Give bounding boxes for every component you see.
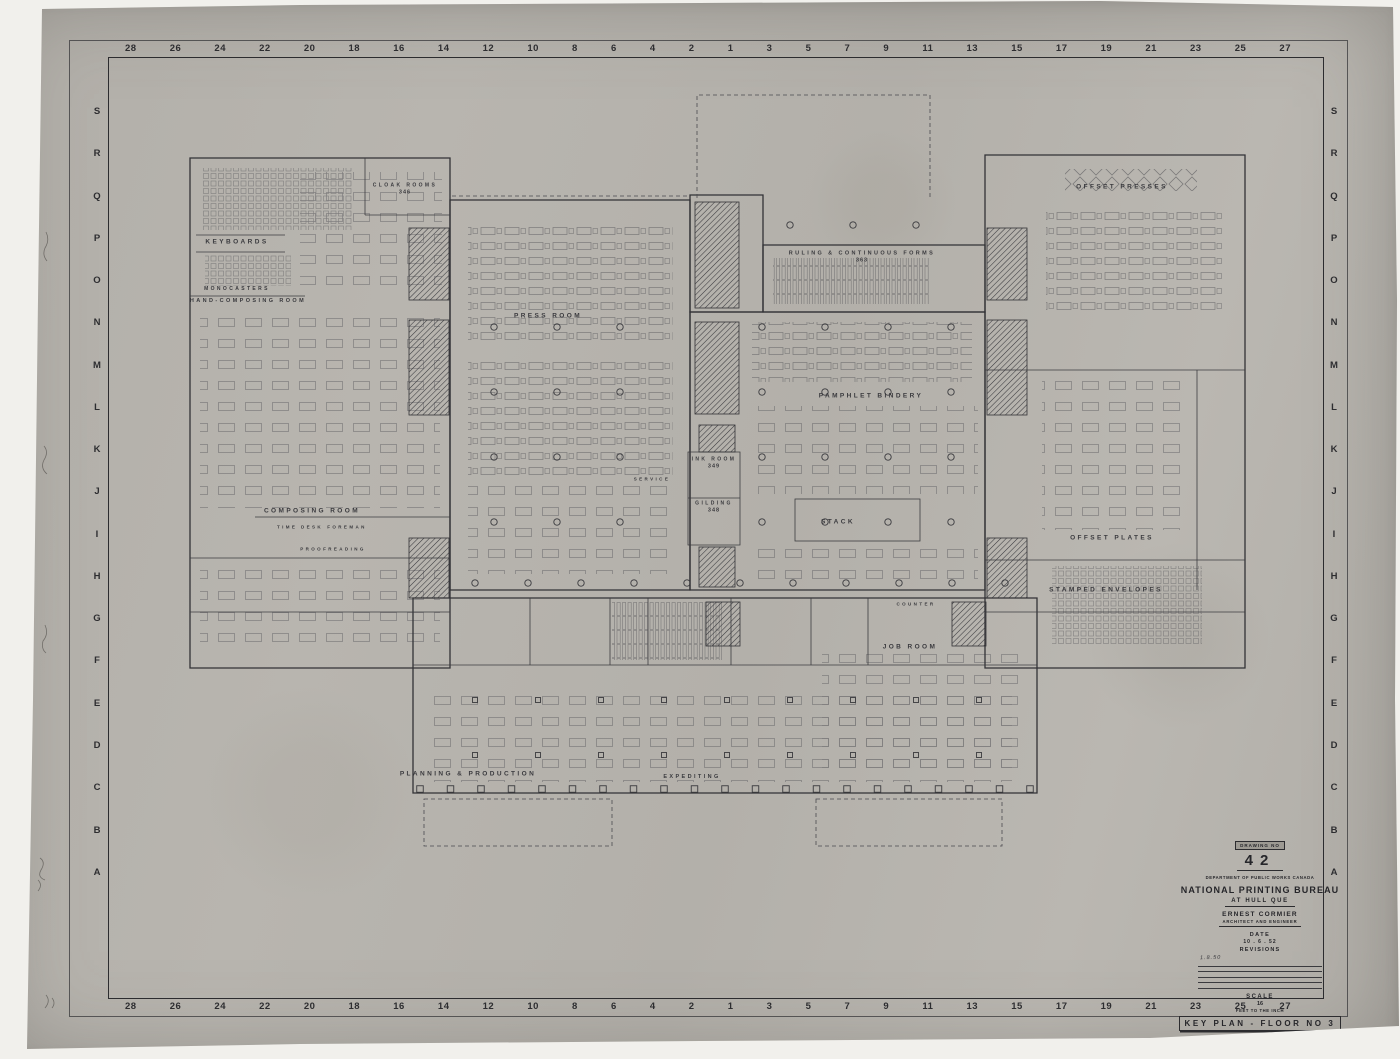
sheet-title: KEY PLAN - FLOOR NO 3 (1179, 1016, 1342, 1031)
drawing-canvas: 2826242220181614121086421357911131517192… (0, 0, 1400, 1059)
project-location: AT HULL QUE (1225, 898, 1294, 907)
architect-name: ERNEST CORMIER (1222, 911, 1298, 918)
scale-units: FEET TO THE INCH (1236, 1008, 1284, 1013)
revision-rule-lines (1198, 961, 1322, 989)
date-label: DATE (1250, 932, 1271, 938)
paper-sheet: 2826242220181614121086421357911131517192… (0, 0, 1400, 1059)
scale-label: SCALE (1246, 994, 1274, 1000)
scale-value: 16 (1257, 1001, 1263, 1007)
department-line: DEPARTMENT OF PUBLIC WORKS CANADA (1206, 875, 1315, 880)
architect-role: ARCHITECT AND ENGINEER (1219, 919, 1302, 927)
project-title: NATIONAL PRINTING BUREAU (1181, 885, 1340, 895)
drawing-number: 42 (1237, 852, 1284, 871)
margin-scribbles (38, 232, 54, 1008)
drawing-number-label: DRAWING NO (1235, 841, 1285, 850)
revisions-label: REVISIONS (1240, 947, 1281, 953)
title-block: DRAWING NO 42 DEPARTMENT OF PUBLIC WORKS… (1198, 841, 1322, 1031)
revision-note: 1.8.50 (1200, 955, 1221, 962)
floor-plan-drawing (0, 0, 1400, 1059)
date-value: 10 . 6 . 52 (1243, 939, 1276, 945)
